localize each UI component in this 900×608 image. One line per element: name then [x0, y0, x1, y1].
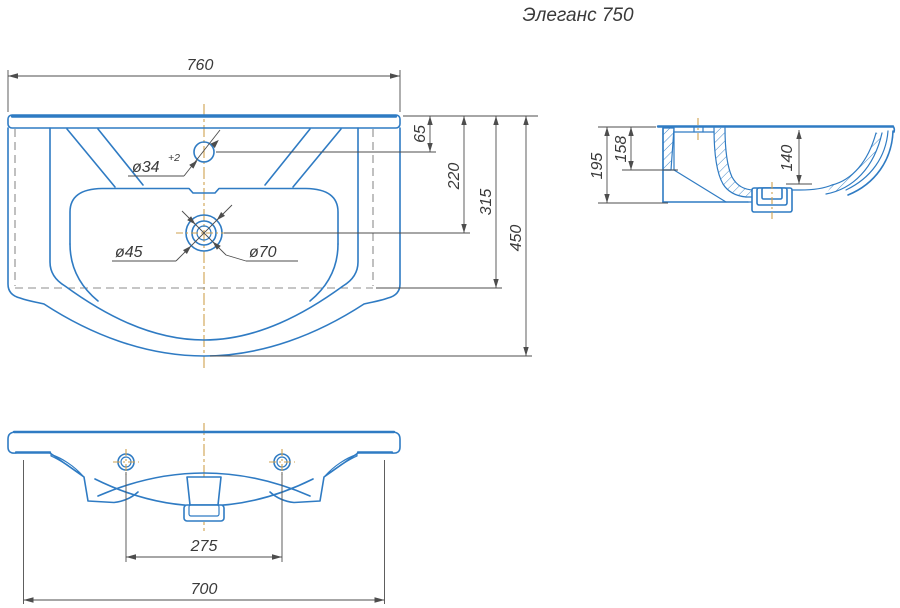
drain-inner-diameter-label: ø45	[115, 244, 143, 261]
dim-overall-width: 760	[8, 57, 400, 112]
dim-overall-depth-label: 450	[508, 225, 525, 252]
dim-bowl-depth-label: 140	[779, 145, 796, 172]
front-view: 275 700	[8, 423, 400, 604]
dim-bowl-depth: 140	[779, 130, 812, 184]
top-view: ø34 +2 ø45 ø70	[8, 57, 538, 370]
mounting-hole-right	[269, 449, 295, 475]
dim-faucet-offset-label: 65	[412, 125, 429, 143]
drawing-title: Элеганс 750	[522, 5, 634, 26]
faucet-diameter-label: ø34	[132, 159, 160, 176]
dim-body-width-label: 700	[191, 581, 218, 598]
dim-back-wall-height-label: 158	[613, 136, 630, 163]
dim-body-depth-label: 315	[478, 189, 495, 216]
mounting-hole-left	[113, 449, 139, 475]
drain-outer-diameter-label: ø70	[249, 244, 277, 261]
front-drain-boss	[187, 477, 221, 505]
right-end-hook	[392, 432, 400, 453]
faucet-tolerance-label: +2	[168, 152, 180, 164]
dim-overall-width-label: 760	[187, 57, 214, 74]
bowl-floor-line	[792, 185, 832, 190]
front-drain-lip-outer	[184, 505, 224, 521]
left-end-hook	[8, 432, 16, 453]
dim-overall-height-label: 195	[589, 153, 606, 180]
side-view: 195 158 140	[589, 118, 894, 219]
dim-drain-offset-label: 220	[446, 163, 463, 191]
drawing-sheet: Элеганс 750	[0, 0, 900, 608]
bowl-back-wall-hatch	[714, 128, 754, 197]
technical-drawing-canvas: Элеганс 750	[0, 0, 900, 608]
dim-hole-spacing-label: 275	[190, 538, 218, 555]
